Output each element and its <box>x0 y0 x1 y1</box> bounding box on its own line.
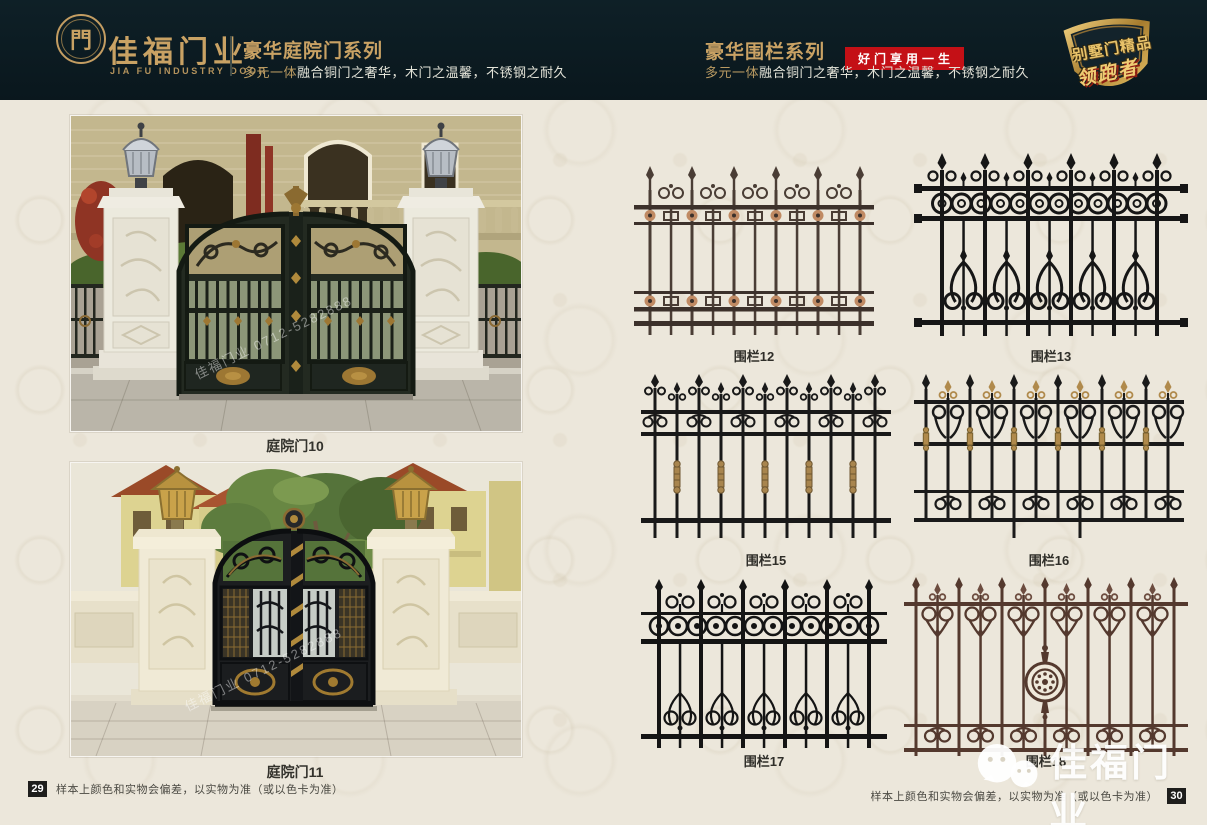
fence-16-label: 围栏16 <box>908 550 1190 569</box>
wechat-icon <box>972 740 1047 798</box>
brand-name: 佳福门业 <box>108 27 248 71</box>
header-band: 門 佳福门业 JIA FU INDUSTRY DOOR 豪华庭院门系列 多元一体… <box>0 0 1207 100</box>
gate-11-illustration <box>71 463 521 756</box>
series-subtitle-right-em: 多元一体 <box>705 65 759 80</box>
fence-13-illustration <box>912 150 1190 346</box>
gate-photo-11: 佳福门业 0712-5282888 <box>70 462 522 757</box>
series-subtitle-left: 多元一体融合铜门之奢华，木门之温馨，不锈钢之耐久 <box>243 62 567 81</box>
fence-17-label: 围栏17 <box>635 751 893 770</box>
gate-10-illustration <box>71 116 521 431</box>
fence-18-illustration <box>900 576 1192 758</box>
series-subtitle-right-rest: 融合铜门之奢华，木门之温馨，不锈钢之耐久 <box>759 65 1029 80</box>
fence-15-label: 围栏15 <box>635 550 897 569</box>
page-number-left: 29 <box>28 781 47 797</box>
gate-11-label: 庭院门11 <box>70 762 520 782</box>
fence-12-label: 围栏12 <box>628 346 880 365</box>
series-subtitle-left-em: 多元一体 <box>243 65 297 80</box>
fence-16-illustration <box>908 372 1190 548</box>
fence-15-illustration <box>635 372 897 548</box>
brand-watermark-text: 佳福门业 <box>1049 740 1207 825</box>
series-subtitle-right: 多元一体融合铜门之奢华，木门之温馨，不锈钢之耐久 <box>705 62 1029 81</box>
premium-shield-badge: 别墅门精品 领跑者 <box>1044 8 1177 108</box>
fence-12-illustration <box>628 160 880 346</box>
footer-left: 29 样本上颜色和实物会偏差，以实物为准（或以色卡为准） <box>28 781 344 797</box>
fence-17-illustration <box>635 578 893 750</box>
series-title-left: 豪华庭院门系列 <box>243 36 383 63</box>
catalog-spread: 門 佳福门业 JIA FU INDUSTRY DOOR 豪华庭院门系列 多元一体… <box>0 0 1207 825</box>
series-title-right: 豪华围栏系列 <box>705 37 825 64</box>
header-divider <box>230 36 232 76</box>
gate-10-label: 庭院门10 <box>70 436 520 456</box>
door-glyph-icon: 門 <box>61 19 101 59</box>
series-subtitle-left-rest: 融合铜门之奢华，木门之温馨，不锈钢之耐久 <box>297 65 567 80</box>
gate-photo-10: 佳福门业 0712-5282888 <box>70 115 522 432</box>
fence-13-label: 围栏13 <box>912 346 1190 365</box>
brand-logo-icon: 門 <box>56 14 106 64</box>
brand-watermark: 佳福门业 <box>972 740 1207 825</box>
footnote-left: 样本上颜色和实物会偏差，以实物为准（或以色卡为准） <box>56 781 344 797</box>
